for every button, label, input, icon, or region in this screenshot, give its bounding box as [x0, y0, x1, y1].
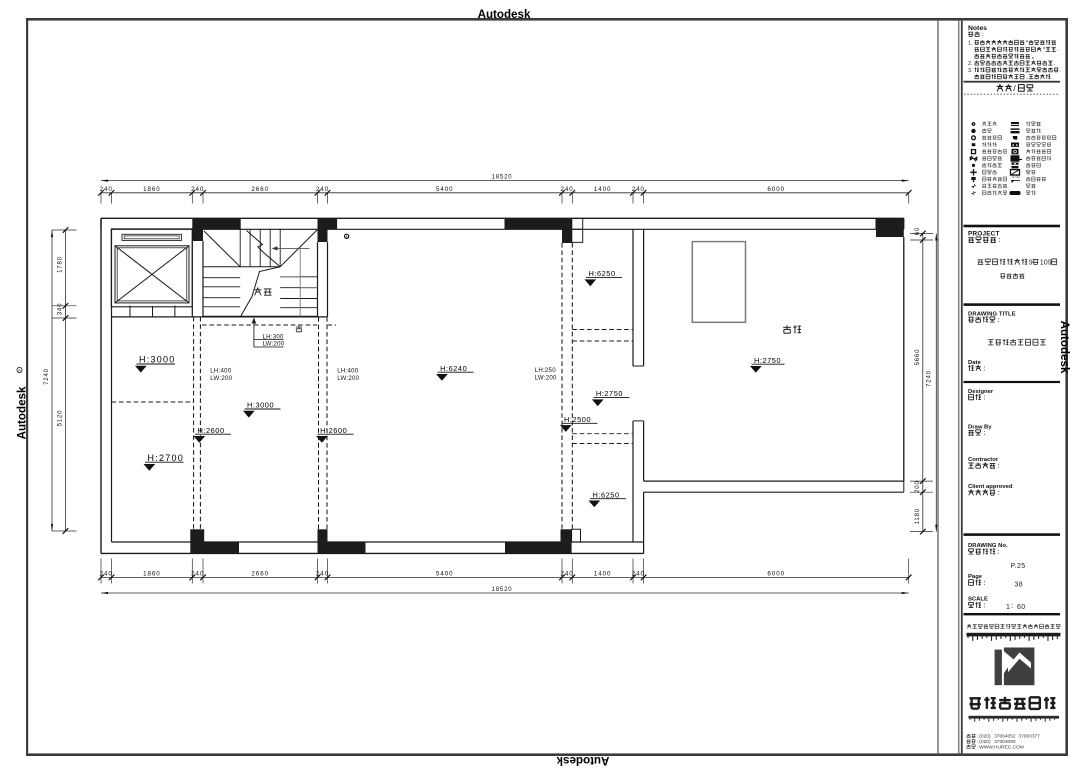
svg-text:PROJECT: PROJECT	[968, 230, 1000, 237]
svg-text:LH:250: LH:250	[535, 367, 557, 374]
svg-text:240: 240	[316, 571, 329, 578]
svg-text:240: 240	[191, 571, 204, 578]
svg-text:H:2750: H:2750	[754, 356, 781, 365]
svg-text:37064052: 37064052	[994, 734, 1016, 740]
svg-text:5120: 5120	[58, 410, 64, 427]
svg-text:1.: 1.	[968, 41, 973, 47]
svg-text:(020): (020)	[979, 734, 991, 740]
svg-text:5400: 5400	[436, 571, 454, 578]
svg-text:9: 9	[1029, 258, 1033, 266]
svg-text:Autodesk: Autodesk	[556, 754, 609, 767]
svg-text:SCALE: SCALE	[968, 596, 988, 602]
svg-text:60: 60	[1017, 604, 1026, 611]
svg-text:H:3000: H:3000	[139, 355, 176, 365]
svg-text:340: 340	[58, 303, 64, 316]
svg-text:240: 240	[561, 186, 574, 193]
svg-text:38: 38	[1015, 581, 1024, 588]
svg-text:DRAWING TITLE: DRAWING TITLE	[968, 311, 1016, 317]
svg-text:3.: 3.	[968, 68, 973, 74]
svg-text:1780: 1780	[58, 256, 64, 273]
svg-text:H:2750: H:2750	[596, 389, 623, 398]
svg-text:2660: 2660	[251, 571, 269, 578]
svg-text:37003377: 37003377	[1018, 734, 1040, 740]
svg-text:Autodesk: Autodesk	[478, 8, 531, 21]
svg-text:H:2600: H:2600	[198, 426, 225, 435]
svg-text:H:6250: H:6250	[589, 269, 616, 278]
svg-text:240: 240	[561, 571, 574, 578]
svg-text:109: 109	[1040, 258, 1052, 266]
svg-text:1860: 1860	[143, 571, 161, 578]
svg-text:6000: 6000	[767, 186, 785, 193]
svg-text:Notes: Notes	[968, 25, 987, 32]
svg-text:1860: 1860	[143, 186, 161, 193]
svg-text:240: 240	[100, 571, 113, 578]
svg-text:LW:200: LW:200	[337, 375, 359, 382]
svg-text:2.: 2.	[968, 61, 973, 67]
svg-text:P.25: P.25	[1011, 563, 1026, 570]
svg-text:H:2700: H:2700	[148, 453, 185, 463]
svg-text:Autodesk: Autodesk	[1058, 321, 1071, 374]
svg-text:200: 200	[915, 480, 921, 493]
svg-text:240: 240	[191, 186, 204, 193]
svg-text:1400: 1400	[594, 186, 612, 193]
svg-text:1: 1	[1006, 604, 1010, 611]
svg-text:Autodesk: Autodesk	[16, 386, 29, 439]
svg-text:WWW.HUREC.COM: WWW.HUREC.COM	[979, 744, 1024, 750]
svg-text:LH:400: LH:400	[337, 367, 359, 374]
svg-text:240: 240	[316, 186, 329, 193]
svg-text:2660: 2660	[251, 186, 269, 193]
svg-text:LW:200: LW:200	[535, 375, 557, 382]
svg-text:240: 240	[100, 186, 113, 193]
svg-text:Client approved: Client approved	[968, 484, 1013, 490]
svg-text:1180: 1180	[915, 508, 921, 524]
svg-text:Page: Page	[968, 574, 983, 580]
svg-text:6000: 6000	[767, 571, 785, 578]
svg-text:37003090: 37003090	[994, 739, 1016, 745]
svg-text:5660: 5660	[915, 349, 921, 366]
svg-text:LH:400: LH:400	[210, 367, 232, 374]
svg-text:1400: 1400	[594, 571, 612, 578]
svg-text:18520: 18520	[492, 174, 513, 180]
svg-text:Date: Date	[968, 360, 981, 366]
svg-text:DRAWING No.: DRAWING No.	[968, 543, 1008, 549]
svg-text:7240: 7240	[926, 370, 932, 387]
svg-text:7240: 7240	[44, 368, 50, 385]
svg-text:H:2600: H:2600	[320, 426, 347, 435]
svg-text:0.00: 0.00	[1012, 174, 1021, 179]
svg-text:H:6250: H:6250	[593, 490, 620, 499]
svg-text:(020): (020)	[979, 739, 991, 745]
svg-text:H:6240: H:6240	[440, 364, 467, 373]
svg-text:5400: 5400	[436, 186, 454, 193]
svg-text:18520: 18520	[492, 587, 513, 593]
svg-text:LW:200: LW:200	[210, 375, 232, 382]
svg-text:R: R	[18, 369, 21, 373]
svg-text:60: 60	[915, 227, 921, 235]
svg-text:H:3000: H:3000	[247, 401, 274, 410]
svg-text:240: 240	[632, 571, 645, 578]
svg-text:H:2500: H:2500	[564, 415, 591, 424]
svg-text:240: 240	[632, 186, 645, 193]
svg-text:Contractor: Contractor	[968, 457, 999, 463]
